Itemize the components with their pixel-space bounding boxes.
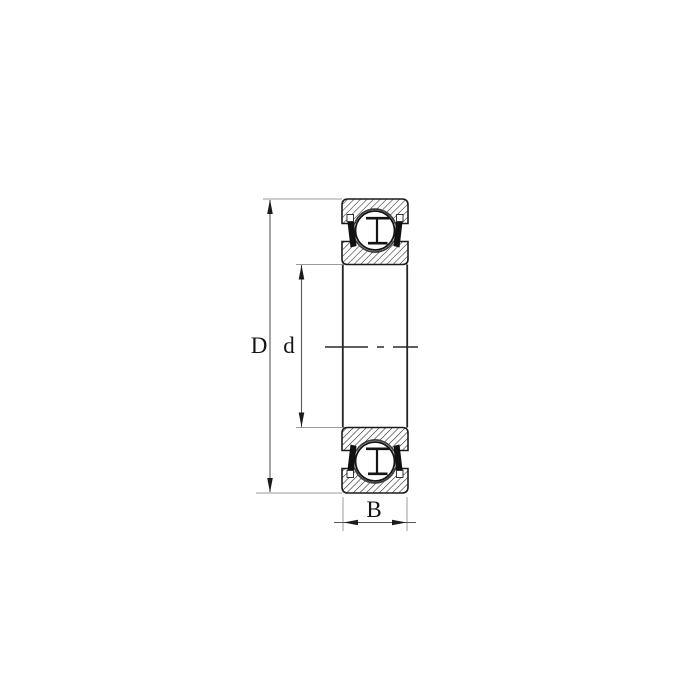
seal-notch-left-top	[347, 215, 354, 222]
arrowhead-d-down	[299, 413, 305, 428]
bearing-technical-drawing: D d B	[0, 0, 700, 700]
label-outer-diameter: D	[251, 333, 268, 358]
arrowhead-d-up	[299, 265, 305, 280]
dimension-outer-diameter: D	[251, 199, 342, 493]
dimension-width: B	[334, 497, 416, 531]
arrowhead-D-up	[267, 200, 273, 215]
dimension-bore-diameter: d	[283, 265, 342, 428]
arrowhead-B-right	[392, 520, 407, 526]
bearing-bottom-section	[342, 428, 408, 494]
seal-notch-right-top	[397, 215, 404, 222]
seal-notch-left-bottom	[347, 471, 354, 478]
bore-walls	[343, 265, 407, 428]
label-bore-diameter: d	[283, 333, 295, 358]
arrowhead-B-left	[344, 520, 359, 526]
arrowhead-D-down	[267, 478, 273, 493]
seal-notch-right-bottom	[397, 471, 404, 478]
label-width: B	[366, 497, 381, 522]
bearing-top-section	[342, 199, 408, 265]
drawing-canvas: D d B	[0, 0, 700, 700]
